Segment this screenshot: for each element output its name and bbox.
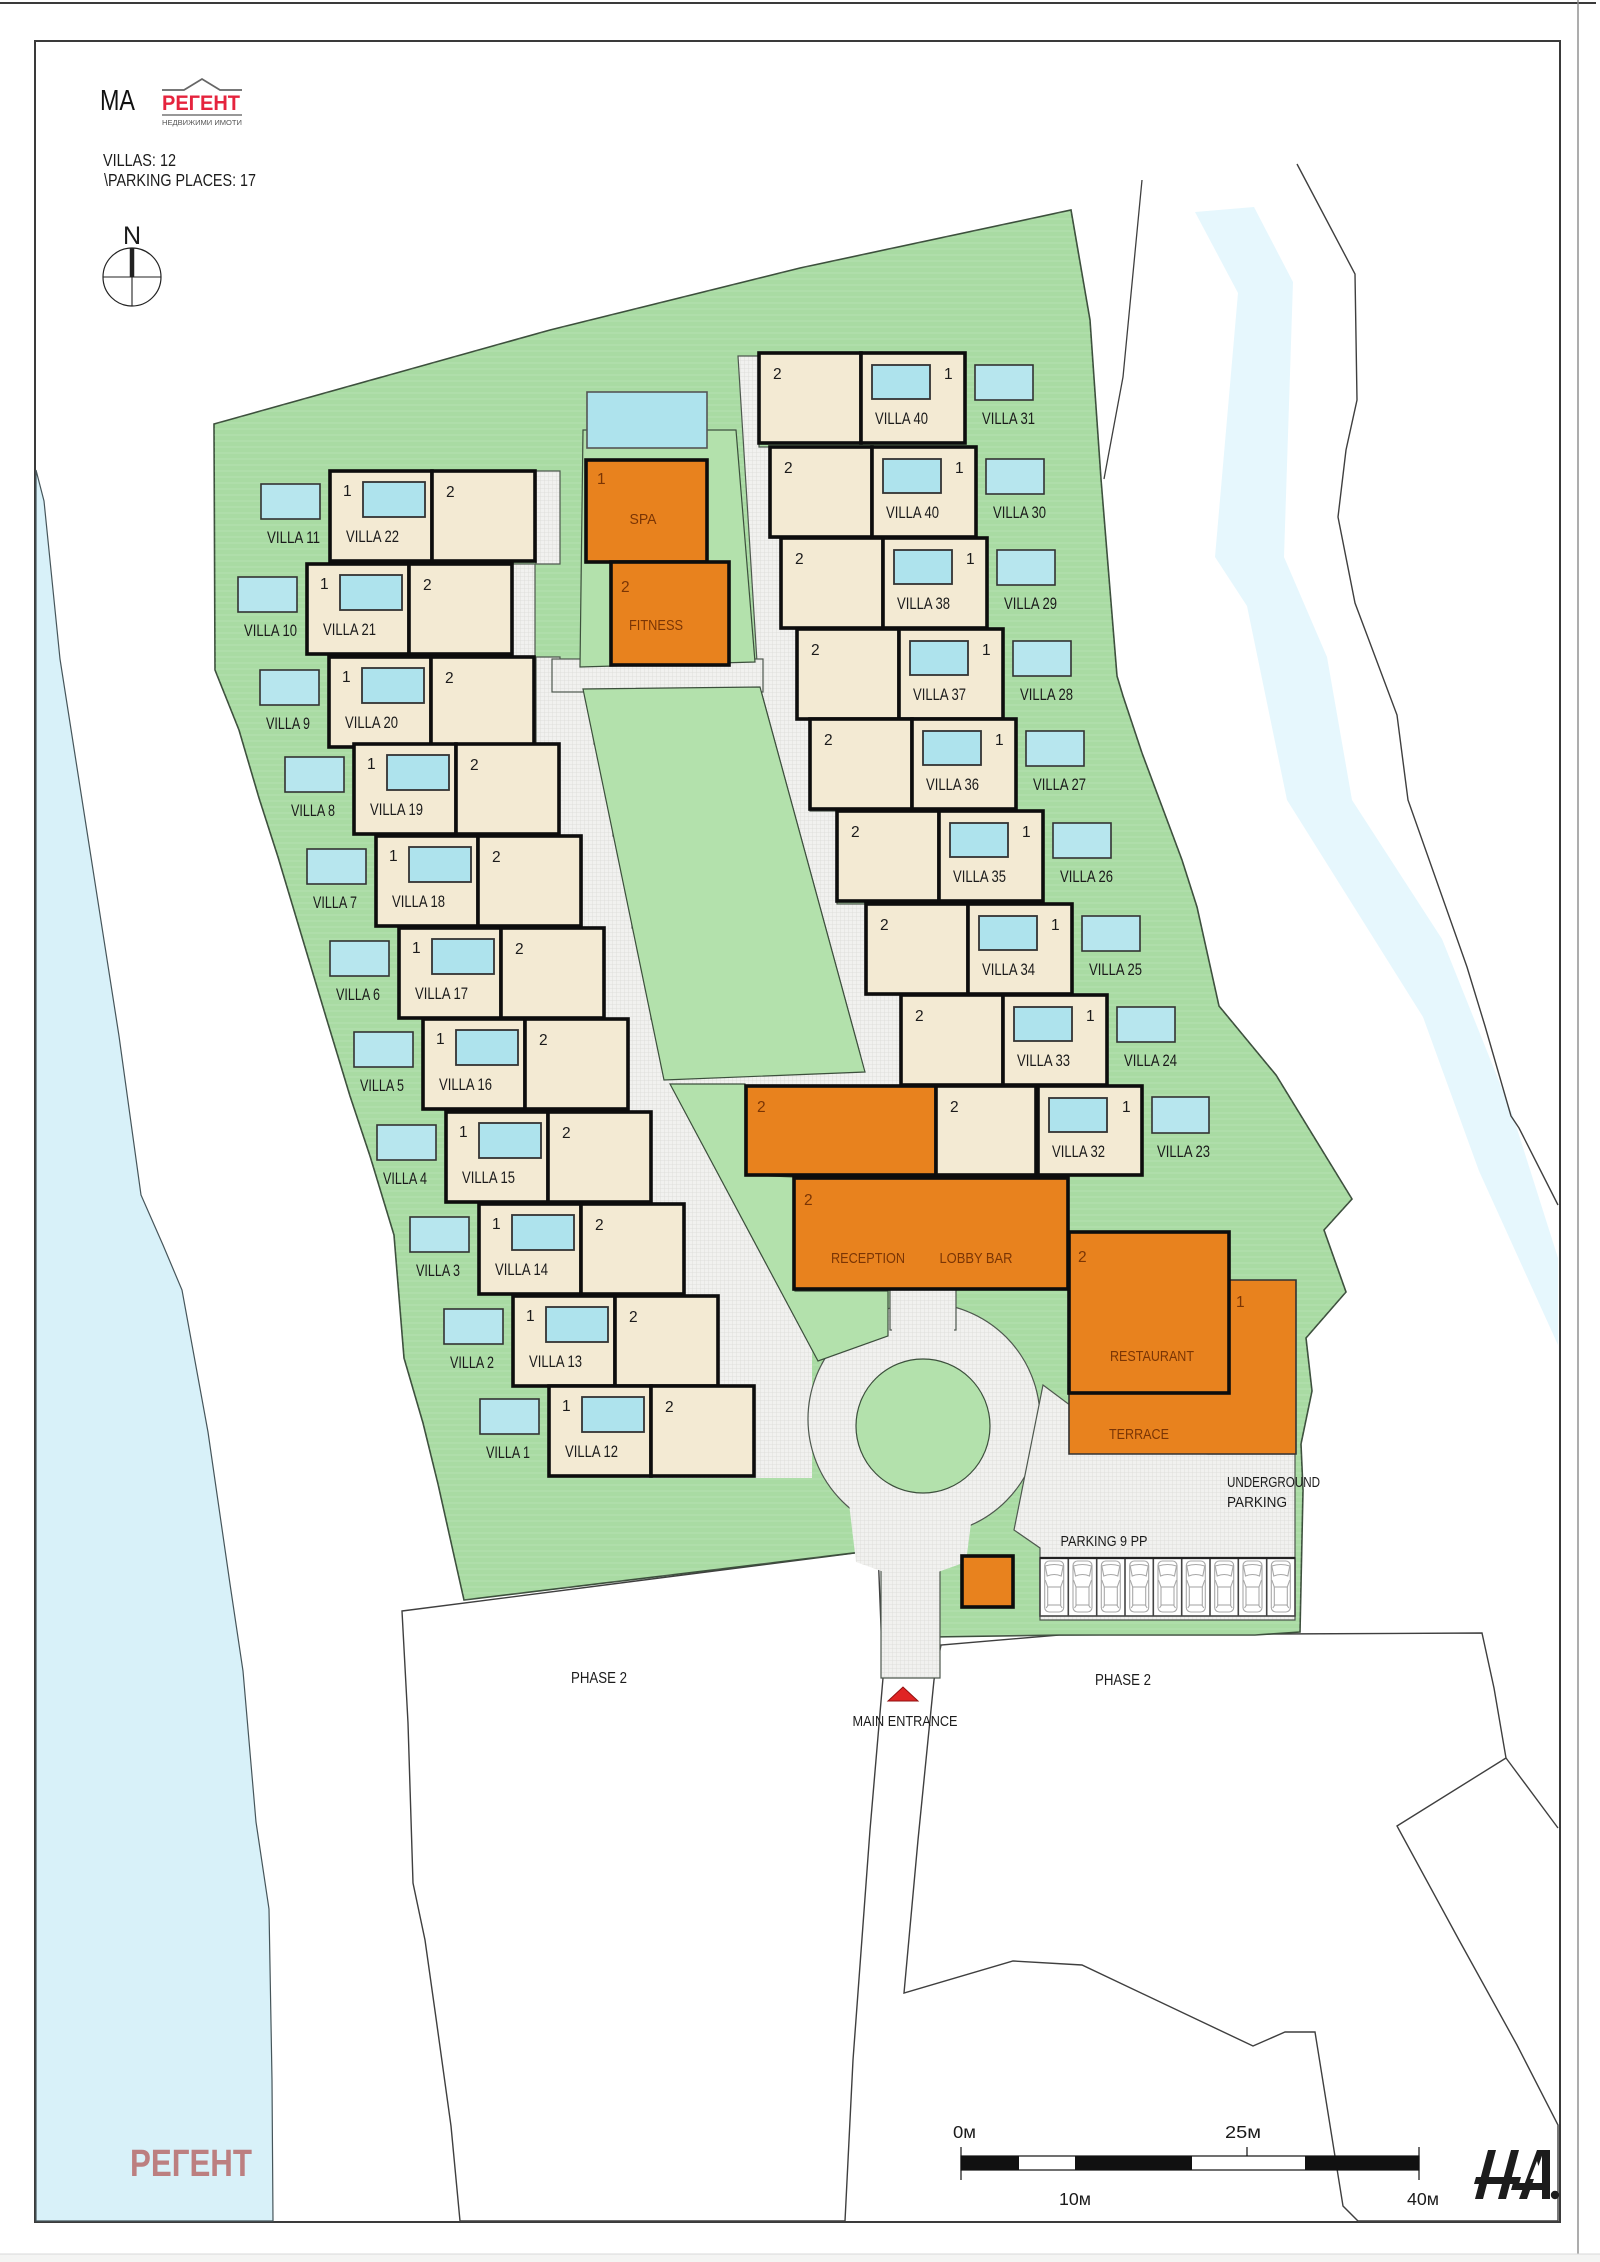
svg-text:\PARKING PLACES: 17: \PARKING PLACES: 17 (104, 170, 256, 190)
svg-text:1: 1 (436, 1031, 445, 1048)
svg-text:VILLA 40: VILLA 40 (875, 409, 928, 428)
svg-text:SPA: SPA (630, 511, 657, 528)
svg-text:2: 2 (423, 577, 432, 594)
svg-text:НЕДВИЖИМИ ИМОТИ: НЕДВИЖИМИ ИМОТИ (162, 120, 242, 127)
svg-text:40м: 40м (1407, 2189, 1439, 2209)
svg-text:VILLA 27: VILLA 27 (1033, 775, 1086, 794)
svg-text:VILLA 7: VILLA 7 (313, 893, 357, 912)
svg-text:VILLA 14: VILLA 14 (495, 1260, 548, 1279)
svg-text:VILLAS: 12: VILLAS: 12 (103, 150, 176, 170)
svg-text:VILLA 32: VILLA 32 (1052, 1142, 1105, 1161)
svg-text:2: 2 (515, 941, 524, 958)
svg-text:VILLA 40: VILLA 40 (886, 503, 939, 522)
svg-text:PHASE 2: PHASE 2 (571, 1670, 627, 1687)
svg-text:VILLA 29: VILLA 29 (1004, 594, 1057, 613)
svg-text:2: 2 (811, 642, 820, 659)
svg-text:РЕГЕНТ: РЕГЕНТ (162, 92, 240, 115)
svg-text:2: 2 (492, 849, 501, 866)
svg-text:РЕГЕНТ: РЕГЕНТ (130, 2143, 252, 2185)
svg-text:VILLA 15: VILLA 15 (462, 1168, 515, 1187)
svg-text:VILLA 2: VILLA 2 (450, 1353, 494, 1372)
svg-text:VILLA 30: VILLA 30 (993, 503, 1046, 522)
svg-text:VILLA 1: VILLA 1 (486, 1443, 530, 1462)
svg-text:PHASE 2: PHASE 2 (1095, 1672, 1151, 1689)
svg-text:1: 1 (1236, 1294, 1245, 1311)
svg-text:VILLA 25: VILLA 25 (1089, 960, 1142, 979)
svg-text:2: 2 (1078, 1249, 1087, 1266)
svg-text:1: 1 (343, 483, 352, 500)
svg-text:1: 1 (562, 1398, 571, 1415)
svg-text:2: 2 (595, 1217, 604, 1234)
svg-text:RESTAURANT: RESTAURANT (1110, 1348, 1194, 1365)
svg-text:VILLA 36: VILLA 36 (926, 775, 979, 794)
svg-text:2: 2 (950, 1099, 959, 1116)
svg-text:MA: MA (100, 85, 136, 117)
svg-text:N: N (123, 222, 141, 250)
svg-text:VILLA 26: VILLA 26 (1060, 867, 1113, 886)
svg-text:VILLA 35: VILLA 35 (953, 867, 1006, 886)
svg-text:VILLA 16: VILLA 16 (439, 1075, 492, 1094)
svg-text:2: 2 (824, 732, 833, 749)
svg-text:VILLA 11: VILLA 11 (267, 528, 320, 547)
svg-text:0м: 0м (953, 2122, 976, 2142)
svg-text:1: 1 (367, 756, 376, 773)
svg-text:UNDERGROUND: UNDERGROUND (1227, 1474, 1320, 1491)
svg-text:1: 1 (1051, 917, 1060, 934)
svg-text:2: 2 (470, 757, 479, 774)
svg-text:2: 2 (446, 484, 455, 501)
svg-text:1: 1 (966, 551, 975, 568)
svg-text:VILLA 4: VILLA 4 (383, 1169, 427, 1188)
svg-text:1: 1 (389, 848, 398, 865)
svg-text:2: 2 (665, 1399, 674, 1416)
svg-text:VILLA 12: VILLA 12 (565, 1442, 618, 1461)
svg-text:2: 2 (445, 670, 454, 687)
svg-text:1: 1 (1086, 1008, 1095, 1025)
svg-text:1: 1 (320, 576, 329, 593)
svg-text:MAIN ENTRANCE: MAIN ENTRANCE (853, 1713, 958, 1730)
svg-text:VILLA 8: VILLA 8 (291, 801, 335, 820)
svg-text:1: 1 (955, 460, 964, 477)
svg-text:VILLA 6: VILLA 6 (336, 985, 380, 1004)
svg-text:VILLA 34: VILLA 34 (982, 960, 1035, 979)
svg-text:1: 1 (597, 471, 606, 488)
svg-text:1: 1 (459, 1124, 468, 1141)
svg-text:1: 1 (1022, 824, 1031, 841)
svg-text:VILLA 20: VILLA 20 (345, 713, 398, 732)
svg-text:VILLA 9: VILLA 9 (266, 714, 310, 733)
svg-text:VILLA 23: VILLA 23 (1157, 1142, 1210, 1161)
svg-text:2: 2 (915, 1008, 924, 1025)
svg-text:RECEPTION: RECEPTION (831, 1250, 905, 1267)
svg-text:2: 2 (851, 824, 860, 841)
svg-text:PARKING 9 PP: PARKING 9 PP (1061, 1533, 1148, 1550)
svg-text:2: 2 (539, 1032, 548, 1049)
svg-text:VILLA 37: VILLA 37 (913, 685, 966, 704)
svg-text:VILLA 3: VILLA 3 (416, 1261, 460, 1280)
svg-text:25м: 25м (1225, 2122, 1261, 2142)
svg-text:VILLA 21: VILLA 21 (323, 620, 376, 639)
svg-text:TERRACE: TERRACE (1109, 1426, 1169, 1443)
svg-text:1: 1 (412, 940, 421, 957)
svg-text:VILLA 22: VILLA 22 (346, 527, 399, 546)
svg-text:VILLA 10: VILLA 10 (244, 621, 297, 640)
svg-text:2: 2 (757, 1099, 766, 1116)
svg-text:VILLA 5: VILLA 5 (360, 1076, 404, 1095)
svg-text:2: 2 (804, 1192, 813, 1209)
svg-text:1: 1 (944, 366, 953, 383)
svg-text:1: 1 (1122, 1099, 1131, 1116)
svg-text:2: 2 (562, 1125, 571, 1142)
svg-text:1: 1 (526, 1308, 535, 1325)
svg-text:1: 1 (982, 642, 991, 659)
svg-text:2: 2 (621, 579, 630, 596)
svg-text:10м: 10м (1059, 2189, 1091, 2209)
svg-text:2: 2 (795, 551, 804, 568)
svg-text:2: 2 (880, 917, 889, 934)
svg-text:PARKING: PARKING (1227, 1494, 1287, 1511)
svg-text:VILLA 18: VILLA 18 (392, 892, 445, 911)
svg-text:VILLA 24: VILLA 24 (1124, 1051, 1177, 1070)
svg-text:VILLA 33: VILLA 33 (1017, 1051, 1070, 1070)
svg-text:2: 2 (629, 1309, 638, 1326)
svg-text:VILLA 31: VILLA 31 (982, 409, 1035, 428)
svg-text:FITNESS: FITNESS (629, 617, 683, 634)
svg-text:1: 1 (492, 1216, 501, 1233)
svg-text:2: 2 (784, 460, 793, 477)
svg-text:VILLA 17: VILLA 17 (415, 984, 468, 1003)
svg-text:VILLA 19: VILLA 19 (370, 800, 423, 819)
svg-text:VILLA 38: VILLA 38 (897, 594, 950, 613)
svg-text:2: 2 (773, 366, 782, 383)
svg-text:LOBBY BAR: LOBBY BAR (940, 1250, 1013, 1267)
svg-text:VILLA 13: VILLA 13 (529, 1352, 582, 1371)
svg-text:1: 1 (995, 732, 1004, 749)
svg-text:1: 1 (342, 669, 351, 686)
svg-text:VILLA 28: VILLA 28 (1020, 685, 1073, 704)
